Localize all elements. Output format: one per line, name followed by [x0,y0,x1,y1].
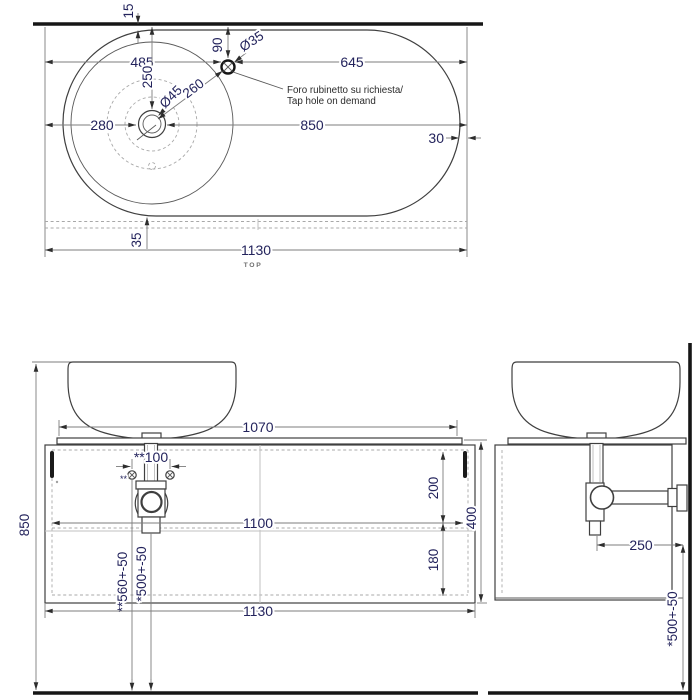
countertop-slab-front [57,438,462,444]
dim-cabinet-width: 1130 [243,603,273,619]
washbasin-bowl-side [512,362,680,439]
dim-trap-to-wall: 250 [629,537,653,553]
handle-fixing-dot [56,481,58,483]
dim-left-edge-to-basin-center: 280 [90,117,114,133]
pipe-connector [668,489,677,507]
dim-tap-to-right-edge: 645 [340,54,364,70]
dim-rear-strip-depth: 35 [129,232,144,247]
drawer-handle-left [50,451,54,478]
technical-drawing-washbasin: 485 645 250 90 Ø35 Ø45 260 Foro rubinett… [0,0,700,700]
fixing-marker-label: ** [120,474,128,484]
front-view: 850 1070 [17,362,487,693]
dim-fixing-hole-spacing: **100 [134,449,168,465]
overflow-hole [149,163,156,170]
dim-countertop-width: 1070 [242,419,273,435]
top-view: 485 645 250 90 Ø35 Ø45 260 Foro rubinett… [33,3,483,269]
dim-basin-center-to-right-edge: 850 [300,117,324,133]
wall-flange [677,485,687,511]
view-label-top: TOP [244,262,263,269]
dim-basin-center-to-tap: 260 [180,76,207,102]
dim-total-width-top: 1130 [241,242,271,258]
dim-basin-center-from-wall: 250 [140,66,155,89]
dim-upper-section-height: 200 [426,477,441,500]
waste-pipe-side [590,444,603,484]
note-leader-line [233,72,283,89]
dim-tap-center-from-wall: 90 [210,37,225,52]
trap-outlet-side [590,521,601,535]
dim-carcass-inner-width: 1100 [243,515,273,531]
side-view: 250 *500+-50 [488,343,690,700]
note-line-1: Foro rubinetto su richiesta/ [287,85,403,96]
trap-elbow-hub [591,486,614,509]
dim-cabinet-height: 400 [464,507,479,530]
dim-drain-diameter: Ø45 [156,82,185,111]
dim-floor-to-basin-top: 850 [17,514,32,537]
dim-right-end-gap: 30 [428,130,444,146]
countertop-outline [63,30,460,216]
trap-outlet-front [142,517,160,533]
dim-waste-left-height: **560+-50 [115,552,130,612]
drawing-svg: 485 645 250 90 Ø35 Ø45 260 Foro rubinett… [0,0,700,700]
cabinet-side [495,445,672,600]
drawer-handle-right [463,451,467,478]
note-line-2: Tap hole on demand [287,96,376,107]
trap-collar-front [136,481,166,489]
dim-waste-outlet-height: *500+-50 [665,591,680,646]
dim-countertop-setback: 15 [121,3,136,18]
dim-lower-section-height: 180 [426,549,441,572]
dim-tap-hole-diameter: Ø35 [237,28,267,54]
dim-waste-right-height: *500+-50 [134,546,149,601]
trap-nut-front [142,492,162,512]
